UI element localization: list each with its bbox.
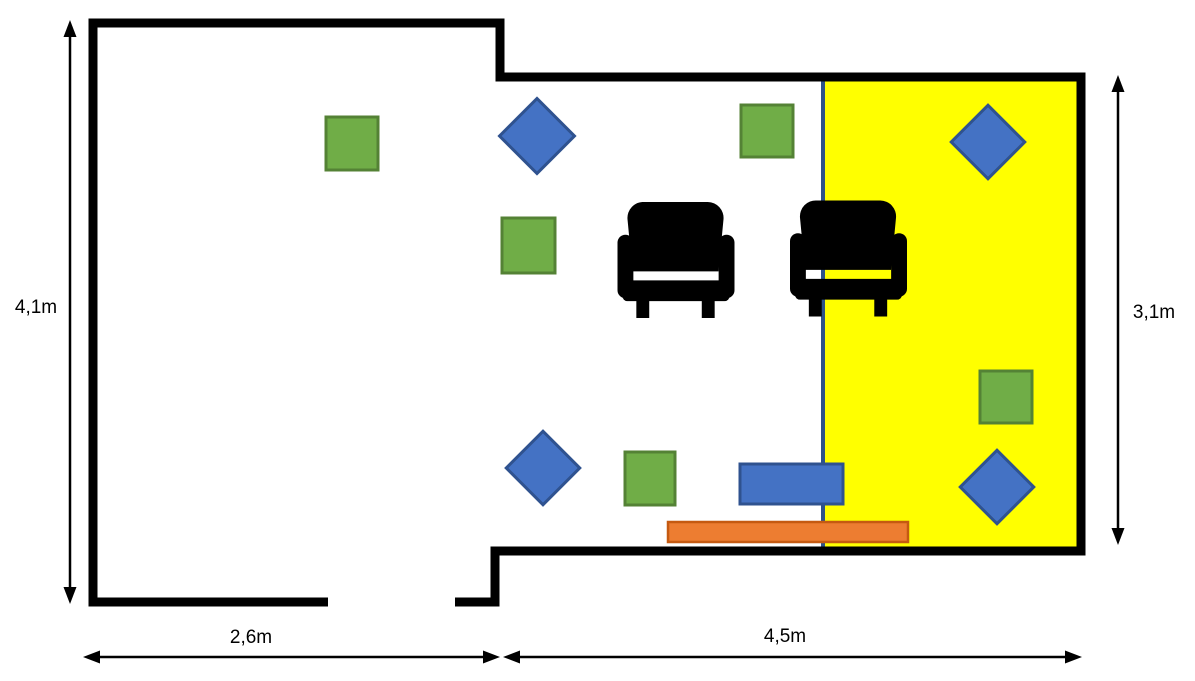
green-square-4 xyxy=(980,371,1032,423)
armchair-1 xyxy=(618,202,735,318)
dim-label-left: 4,1m xyxy=(6,298,66,319)
dim-label-right: 3,1m xyxy=(1124,303,1184,324)
dimension-arrow-right-vertical xyxy=(1112,75,1125,545)
blue-diamond-3 xyxy=(506,431,580,505)
dimension-arrow-bottom-left xyxy=(83,651,500,664)
green-square-5 xyxy=(625,452,675,505)
green-square-2 xyxy=(502,218,555,273)
armchair-2 xyxy=(790,200,907,316)
tv-zone xyxy=(823,80,1077,547)
dim-label-bottom-left: 2,6m xyxy=(221,628,281,649)
zone-layer xyxy=(823,80,1077,547)
blue-diamond-1 xyxy=(500,99,575,174)
floor-plan-canvas xyxy=(0,0,1195,681)
floor-plan-diagram: 4,1m 3,1m 2,6m 4,5m xyxy=(0,0,1195,681)
blue-rectangle xyxy=(740,464,843,504)
green-square-3 xyxy=(741,105,793,157)
green-square-1 xyxy=(326,117,378,170)
dimension-arrow-bottom-right xyxy=(503,651,1082,664)
orange-bar xyxy=(668,522,908,542)
dim-label-bottom-right: 4,5m xyxy=(755,627,815,648)
